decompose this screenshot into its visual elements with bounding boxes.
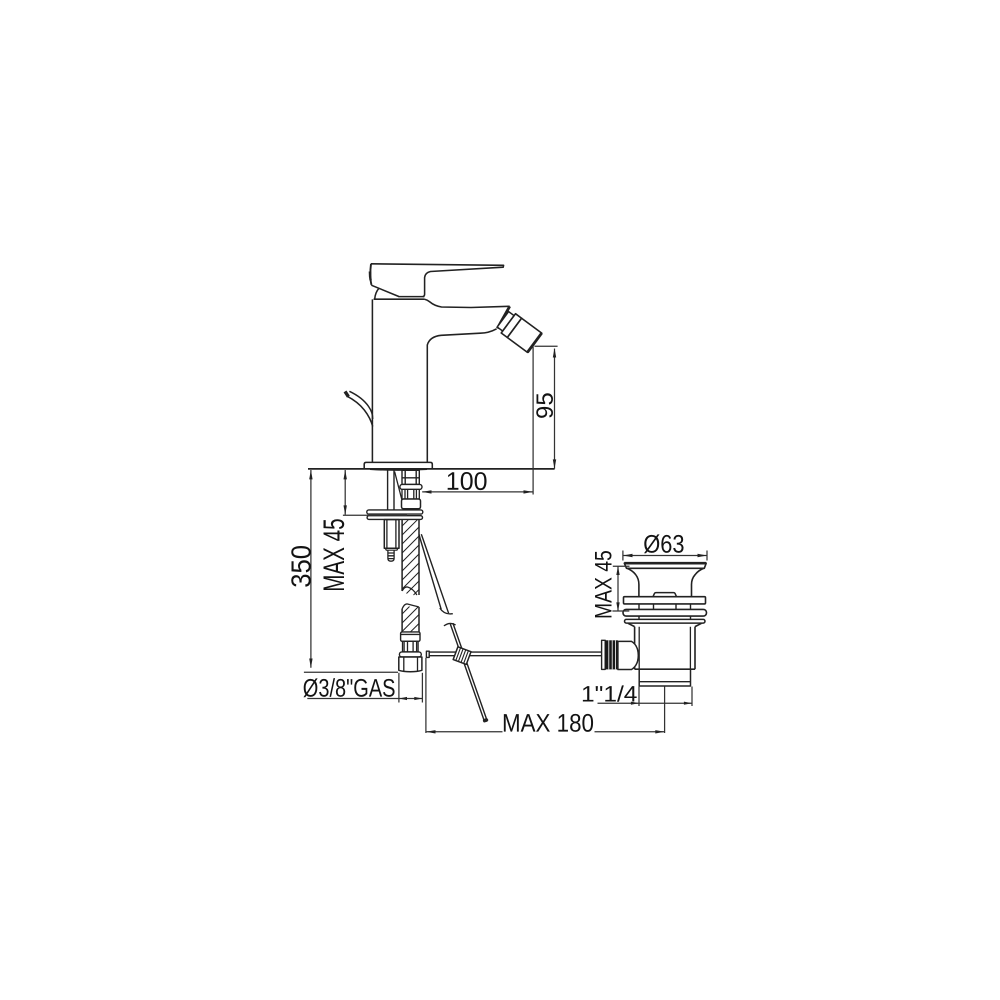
- svg-text:1"1/4: 1"1/4: [581, 682, 637, 707]
- svg-text:Ø63: Ø63: [643, 530, 684, 559]
- svg-text:95: 95: [532, 392, 559, 419]
- svg-text:MAX 45: MAX 45: [319, 518, 351, 591]
- svg-text:MAX 45: MAX 45: [589, 550, 617, 619]
- svg-text:MAX 180: MAX 180: [502, 709, 594, 738]
- svg-text:Ø3/8"GAS: Ø3/8"GAS: [303, 673, 396, 702]
- svg-text:100: 100: [446, 468, 488, 496]
- svg-text:350: 350: [286, 545, 317, 588]
